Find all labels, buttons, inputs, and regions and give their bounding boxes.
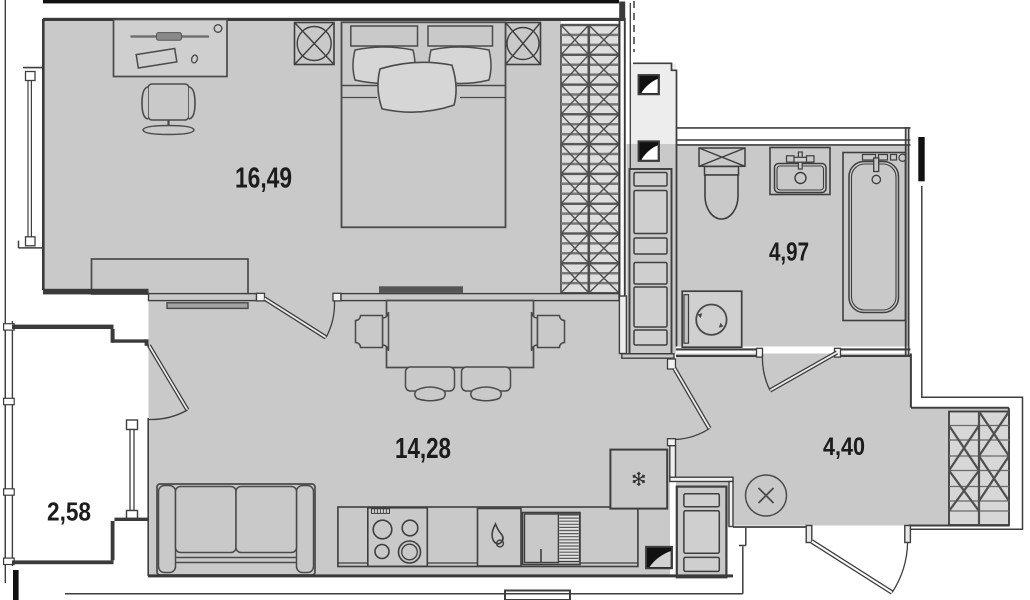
svg-text:16,49: 16,49 (235, 163, 292, 195)
svg-text:4,97: 4,97 (769, 237, 809, 267)
svg-text:14,28: 14,28 (395, 433, 451, 465)
svg-text:2,58: 2,58 (47, 497, 91, 527)
svg-text:4,40: 4,40 (823, 433, 865, 461)
